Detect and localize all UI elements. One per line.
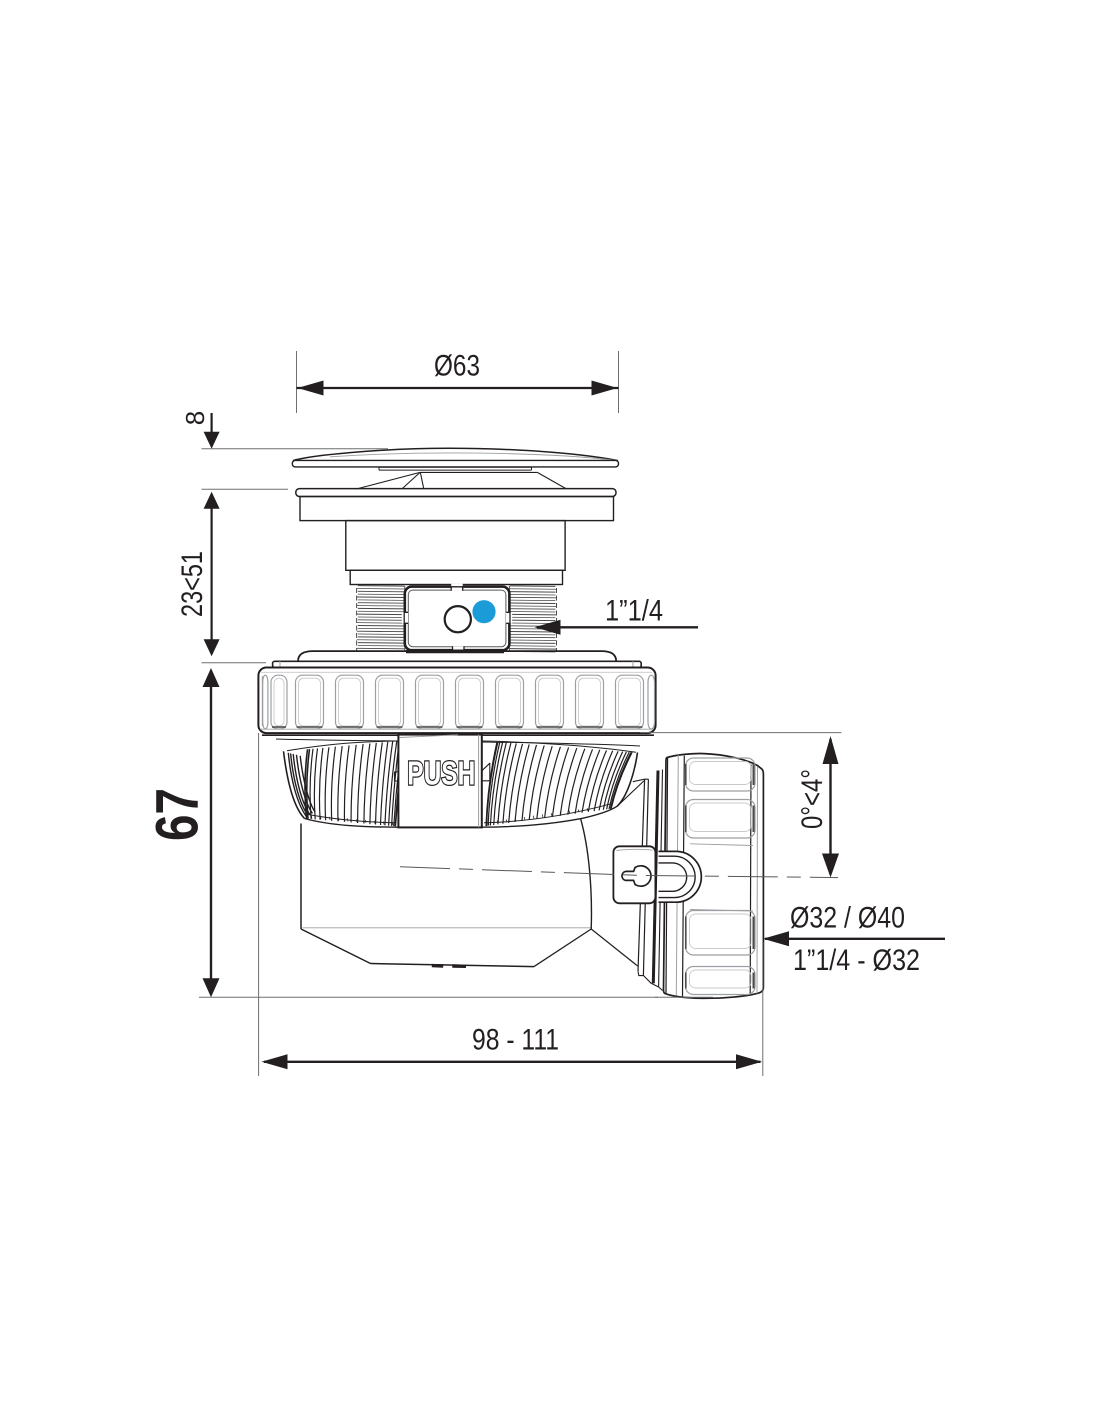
svg-text:8: 8 [180,411,210,425]
svg-text:67: 67 [144,788,211,841]
svg-text:23<51: 23<51 [176,551,209,617]
svg-text:98 - 111: 98 - 111 [472,1024,559,1057]
svg-text:1”1/4 - Ø32: 1”1/4 - Ø32 [793,944,920,977]
svg-text:Ø63: Ø63 [434,350,480,383]
svg-text:1”1/4: 1”1/4 [605,595,663,628]
svg-text:Ø32 / Ø40: Ø32 / Ø40 [790,902,905,935]
svg-text:PUSH: PUSH [407,755,475,792]
svg-text:0°<4°: 0°<4° [796,769,829,829]
